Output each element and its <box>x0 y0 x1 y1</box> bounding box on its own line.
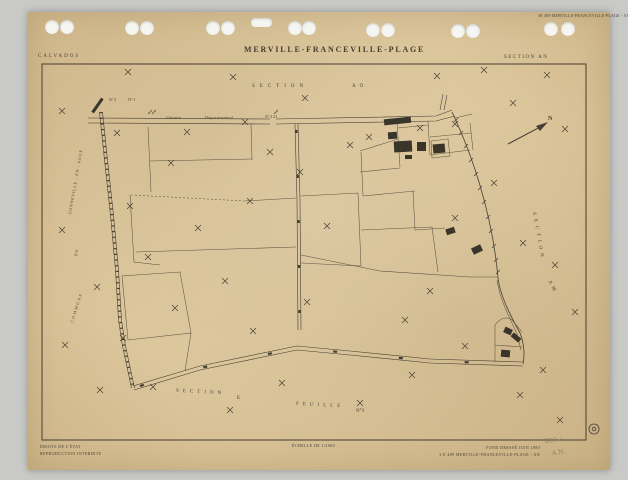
survey-cross-icon <box>557 417 563 423</box>
survey-cross-icon <box>544 72 550 78</box>
survey-cross-icon <box>125 69 131 75</box>
footer-right-line1: FOND DRESSÉ JUIN 1980 <box>486 446 540 450</box>
survey-cross-icon <box>572 309 578 315</box>
building-footprint <box>388 132 397 140</box>
survey-cross-icon <box>172 305 178 311</box>
footer-left-line2: REPRODUCTION INTERDITE <box>40 452 102 456</box>
map-border <box>42 64 586 440</box>
survey-cross-icon <box>409 372 415 378</box>
road-stub-north <box>440 94 447 110</box>
survey-cross-icon <box>279 380 285 386</box>
building-footprint <box>405 155 412 159</box>
parcel-lines <box>122 114 522 371</box>
road-number-left: N°2 <box>109 98 117 102</box>
building-footprint <box>91 98 103 114</box>
footer-scale: ÉCHELLE DE 1/2000 <box>292 444 335 448</box>
survey-cross-icon <box>97 387 103 393</box>
building-footprint <box>433 143 446 153</box>
survey-cross-icon <box>150 384 156 390</box>
road-number-right: N°1 <box>128 98 136 102</box>
survey-cross-icon <box>552 262 558 268</box>
survey-cross-icon <box>324 223 330 229</box>
road-bottom <box>133 346 523 390</box>
survey-cross-icon <box>481 67 487 73</box>
survey-cross-icon <box>120 335 126 341</box>
cadastral-map-linework <box>0 0 628 480</box>
building-footprint <box>417 142 426 151</box>
survey-cross-icon <box>517 392 523 398</box>
survey-cross-icon <box>227 407 233 413</box>
survey-cross-icon <box>304 299 310 305</box>
survey-cross-icon <box>357 400 363 406</box>
survey-cross-icon <box>540 367 546 373</box>
building-footprint <box>394 141 413 153</box>
building-footprint <box>445 227 455 235</box>
building-footprint <box>503 327 513 336</box>
north-arrow-icon <box>508 122 548 144</box>
survey-cross-icon <box>452 215 458 221</box>
survey-cross-icon <box>184 129 190 135</box>
sheet-code: N°3 <box>356 409 364 414</box>
survey-cross-icon <box>347 142 353 148</box>
building-footprint <box>501 350 511 358</box>
survey-cross-icon <box>59 227 65 233</box>
section-top-word: SECTION <box>252 84 308 89</box>
building-footprint <box>384 117 411 126</box>
road-central <box>295 124 301 330</box>
footer-right-line2: 3 E 489 MERVILLE-FRANCEVILLE-PLAGE - AN <box>439 453 540 457</box>
survey-cross-icon <box>520 240 526 246</box>
footer-left-line1: DROITS DE L'ÉTAT <box>40 445 81 449</box>
survey-cross-icon <box>62 342 68 348</box>
map-symbols <box>59 67 578 423</box>
road-name-1: Chemin <box>166 116 181 120</box>
survey-cross-icon <box>222 278 228 284</box>
survey-cross-icon <box>302 95 308 101</box>
survey-cross-icon <box>402 317 408 323</box>
survey-cross-icon <box>127 203 133 209</box>
road-name-2: Départemental <box>205 116 234 120</box>
survey-cross-icon <box>366 134 372 140</box>
survey-cross-icon <box>94 284 100 290</box>
scanned-cadastral-map-page: { "colors": { "background": "#c9c9c7", "… <box>0 0 628 480</box>
survey-cross-icon <box>510 100 516 106</box>
road-left-boundary <box>101 112 133 388</box>
survey-cross-icon <box>491 180 497 186</box>
building-footprint <box>471 244 483 255</box>
survey-cross-icon <box>59 108 65 114</box>
road-name-3: N°223 <box>265 115 278 119</box>
survey-cross-icon <box>250 328 256 334</box>
section-bottom-code: E <box>237 396 240 401</box>
survey-cross-icon <box>145 254 151 260</box>
survey-cross-icon <box>434 73 440 79</box>
survey-cross-icon <box>195 225 201 231</box>
survey-cross-icon <box>297 169 303 175</box>
survey-cross-icon <box>230 74 236 80</box>
survey-cross-icon <box>267 149 273 155</box>
survey-cross-icon <box>168 160 174 166</box>
survey-cross-icon <box>562 126 568 132</box>
boundary-tick-icon <box>152 110 156 114</box>
building-footprint <box>511 332 522 342</box>
boundary-tick-icon <box>496 270 500 274</box>
survey-cross-icon <box>114 130 120 136</box>
seal-stamp-icon <box>589 424 599 434</box>
north-letter: N <box>548 116 552 122</box>
section-top-code: AO <box>352 84 367 89</box>
survey-cross-icon <box>427 288 433 294</box>
survey-cross-icon <box>462 343 468 349</box>
boundary-tick-icon <box>148 110 152 114</box>
